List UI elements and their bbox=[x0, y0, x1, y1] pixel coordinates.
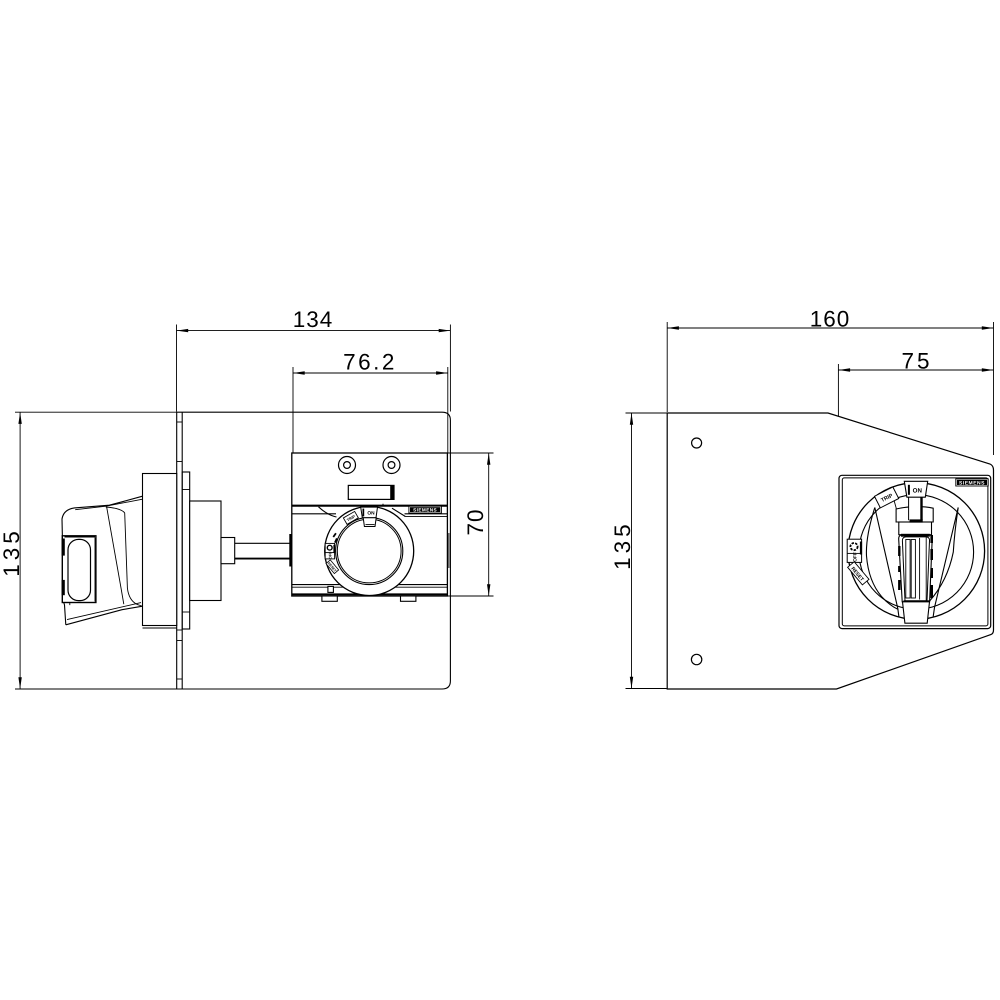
svg-text:160: 160 bbox=[810, 307, 851, 332]
svg-text:135: 135 bbox=[0, 527, 24, 577]
svg-text:ON: ON bbox=[367, 511, 375, 517]
svg-text:135: 135 bbox=[610, 520, 635, 570]
svg-text:OFF: OFF bbox=[853, 552, 859, 562]
svg-text:SIEMENS: SIEMENS bbox=[413, 508, 437, 513]
svg-text:SIEMENS: SIEMENS bbox=[959, 480, 985, 486]
svg-text:70: 70 bbox=[463, 508, 488, 535]
svg-text:134: 134 bbox=[293, 307, 334, 332]
svg-text:OFF: OFF bbox=[328, 551, 332, 559]
svg-text:ON: ON bbox=[913, 487, 923, 494]
svg-text:75: 75 bbox=[901, 349, 932, 374]
svg-text:76.2: 76.2 bbox=[343, 350, 397, 375]
